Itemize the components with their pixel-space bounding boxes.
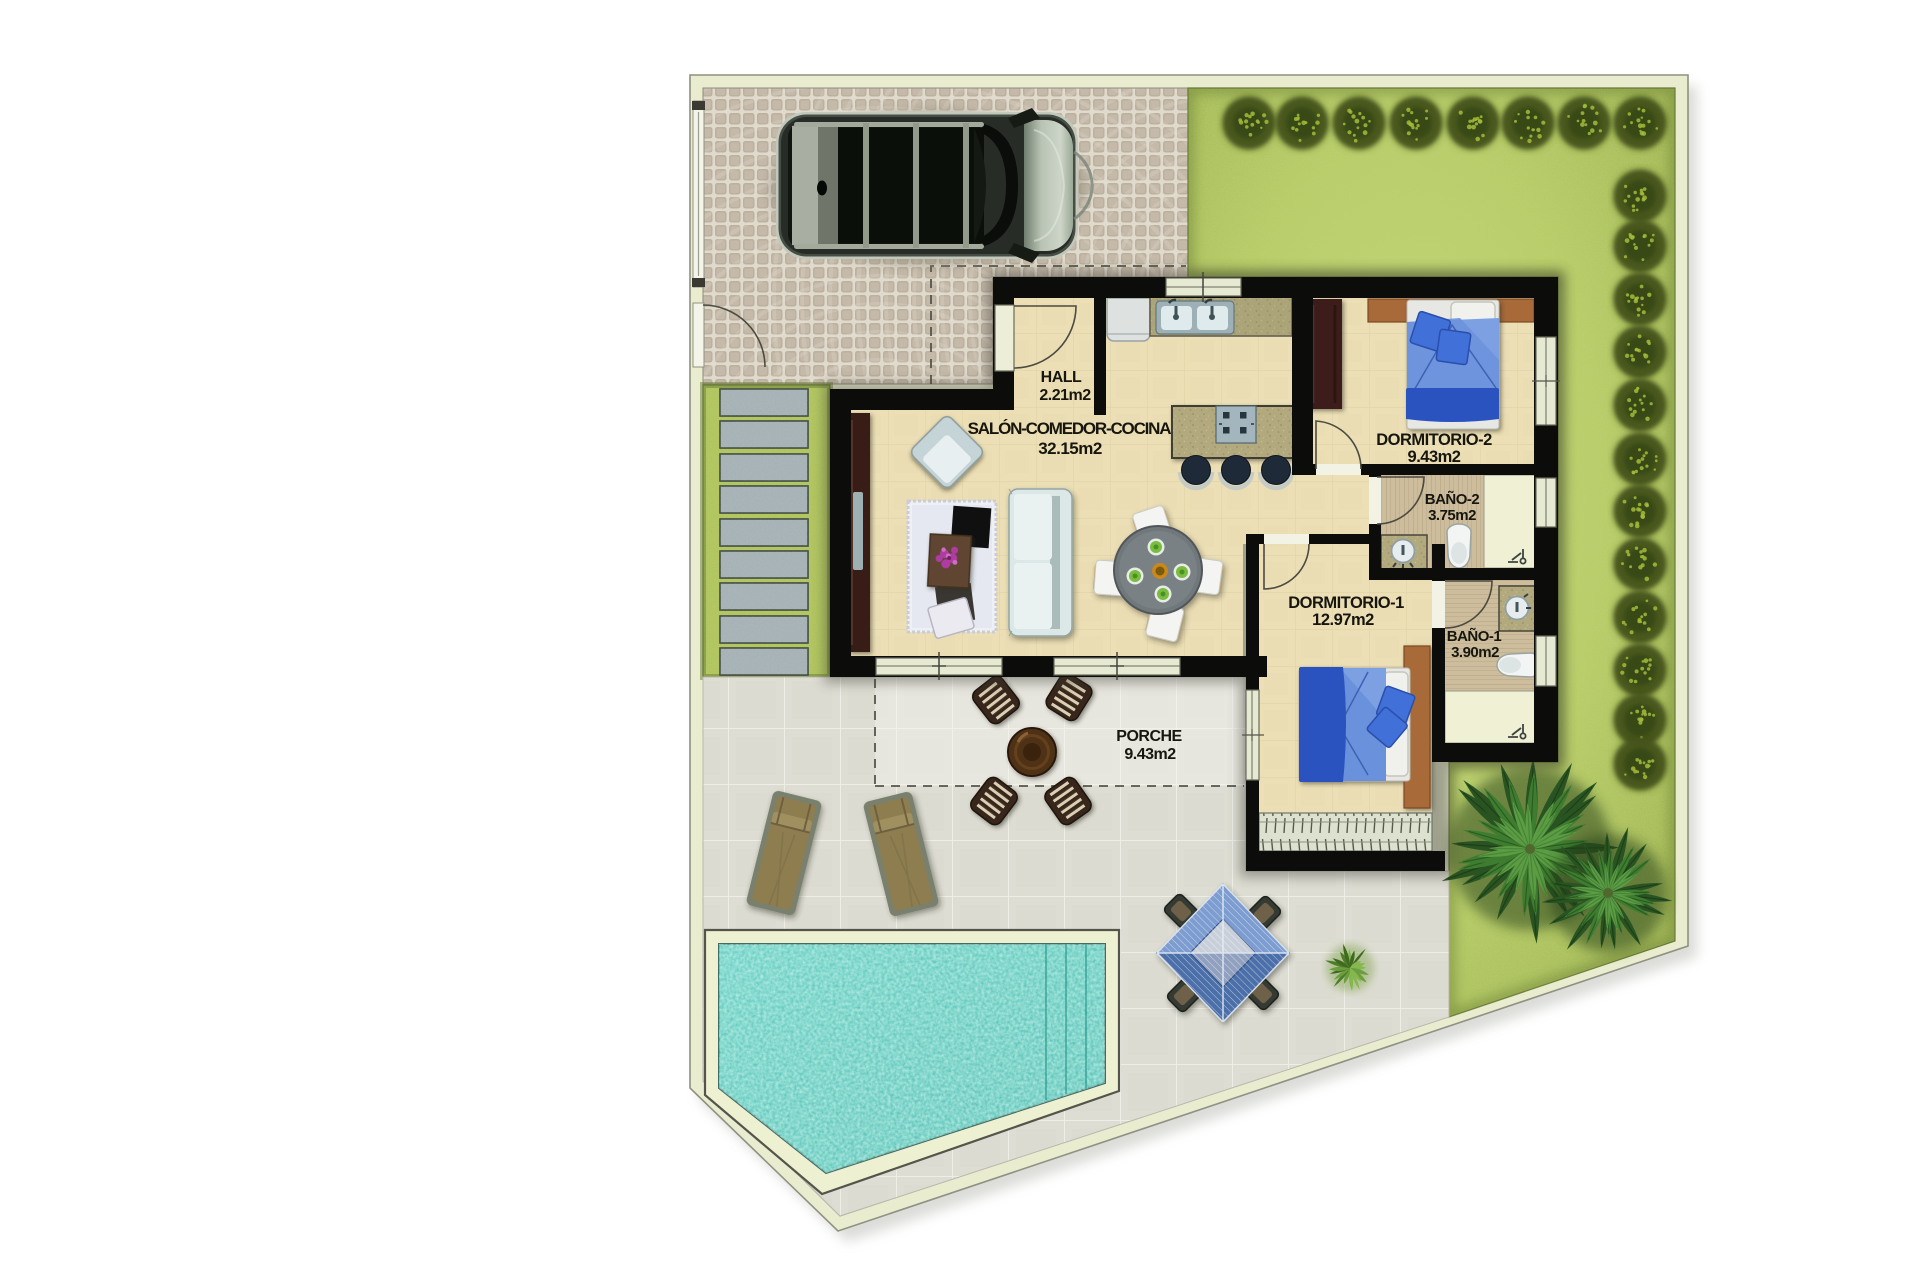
svg-text:9.43m2: 9.43m2: [1408, 448, 1461, 466]
svg-text:32.15m2: 32.15m2: [1038, 439, 1102, 458]
svg-text:2.21m2: 2.21m2: [1039, 387, 1091, 404]
svg-text:PORCHE: PORCHE: [1116, 728, 1182, 745]
svg-text:BAÑO-1: BAÑO-1: [1447, 627, 1502, 645]
svg-text:BAÑO-2: BAÑO-2: [1425, 490, 1480, 508]
svg-text:DORMITORIO-1: DORMITORIO-1: [1288, 594, 1404, 612]
svg-text:3.90m2: 3.90m2: [1451, 644, 1499, 661]
svg-text:12.97m2: 12.97m2: [1312, 611, 1374, 629]
svg-text:SALÓN-COMEDOR-COCINA: SALÓN-COMEDOR-COCINA: [968, 419, 1172, 438]
svg-text:DORMITORIO-2: DORMITORIO-2: [1376, 431, 1492, 449]
svg-text:HALL: HALL: [1041, 369, 1082, 386]
svg-text:3.75m2: 3.75m2: [1428, 507, 1476, 524]
svg-text:9.43m2: 9.43m2: [1124, 746, 1176, 763]
